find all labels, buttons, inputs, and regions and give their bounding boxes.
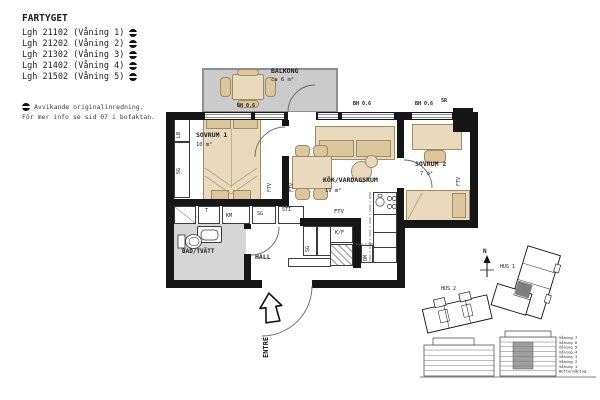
floor-label: Våning 3 <box>559 354 577 359</box>
bed-pillow <box>452 193 466 218</box>
floor-label: Våning 4 <box>559 349 578 354</box>
wall-bottom-left <box>166 280 262 288</box>
hall-bench <box>288 258 331 267</box>
coffee-table-small <box>365 155 378 168</box>
window <box>412 113 452 119</box>
fixture-label-dm: DM <box>364 255 369 261</box>
bedroom2-area: 7 m² <box>420 172 433 178</box>
apartment-row: Lgh 21102 (Våning 1) <box>22 27 137 38</box>
header-block: FARTYGET Lgh 21102 (Våning 1) Lgh 21202 … <box>22 13 137 82</box>
balcony-rail-label: BH 0.6 <box>237 104 255 109</box>
balcony-chair <box>237 69 259 76</box>
fixture-label-km: KM <box>226 214 232 219</box>
balcony-label: BALKONG <box>271 68 298 75</box>
window-bh-label: BH 0.6 <box>415 102 433 107</box>
wardrobe <box>317 226 331 256</box>
balcony-area: ca 6 m² <box>271 78 294 84</box>
fixture-label-kf: K/F <box>335 231 344 236</box>
wall-bedroom2-divider-bottom <box>397 188 404 228</box>
avvikande-marker-icon <box>129 40 137 48</box>
footnote: Avvikande originalinredning. För mer inf… <box>22 102 155 122</box>
shaft-label: SR <box>441 99 447 104</box>
fixture-label-sg: SG <box>177 168 182 174</box>
bathroom-label: BAD/TVÄTT <box>182 249 215 255</box>
site-hus2-building <box>421 288 492 333</box>
fixture-label-ftv: FTV <box>457 177 462 186</box>
footnote-line2: För mer info se sid 07 i bofaktan. <box>22 112 155 122</box>
balcony-door-opening <box>288 112 316 120</box>
door-arc-entry <box>262 286 312 336</box>
wall-kitchen-right <box>397 220 405 288</box>
door-arc-bathroom <box>251 227 279 255</box>
washbasin <box>197 226 222 243</box>
hus2-label: HUS 2 <box>441 286 456 292</box>
apartment-label: Lgh 21102 (Våning 1) <box>22 28 124 38</box>
fixture-label-ftv: FTV <box>268 183 273 192</box>
avvikande-marker-icon <box>129 62 137 70</box>
fixture-label-sti: STI <box>282 208 291 213</box>
fridge-freezer-hatch <box>330 244 353 266</box>
window-bh-label: BH 0.6 <box>353 102 371 107</box>
avvikande-marker-icon <box>129 29 137 37</box>
counter-divider <box>373 247 397 248</box>
kitchen-counter <box>373 192 397 263</box>
fixture-label-lb: LB <box>177 132 182 138</box>
floor-label: Våning 2 <box>559 359 577 364</box>
entry-label: ENTRÉ <box>263 337 270 358</box>
site-hus1-building <box>491 241 563 321</box>
entry-arrow-icon <box>258 292 284 324</box>
bedroom1-area: 10 m² <box>196 143 213 149</box>
dining-table <box>292 156 332 189</box>
floor-plan-page: FARTYGET Lgh 21102 (Våning 1) Lgh 21202 … <box>0 0 600 400</box>
wall-storage-top <box>300 218 361 226</box>
avvikande-marker-icon <box>129 51 137 59</box>
floor-label: Våning 1 <box>559 364 578 369</box>
apartment-row: Lgh 21402 (Våning 4) <box>22 60 137 71</box>
apartment-label: Lgh 21302 (Våning 3) <box>22 50 124 60</box>
dining-chair <box>295 145 310 157</box>
north-label: N <box>483 248 487 255</box>
apartment-label: Lgh 21202 (Våning 2) <box>22 39 124 49</box>
counter-divider <box>373 232 397 233</box>
window <box>205 113 251 119</box>
wall-bath-hall-stub <box>244 224 251 229</box>
floor-label: Våning 5 <box>559 345 577 350</box>
fixture-label-t: T <box>205 209 208 214</box>
avvikande-marker-icon <box>129 73 137 81</box>
dryer-cabinet <box>198 206 220 224</box>
floor-label: Våning 7 <box>559 335 577 340</box>
apartment-row: Lgh 21502 (Våning 5) <box>22 71 137 82</box>
hall-label: HALL <box>255 254 271 261</box>
balcony-chair <box>220 77 231 97</box>
fixture-label-sg: SG <box>257 212 263 217</box>
dining-chair <box>295 188 310 200</box>
wall-bedroom2-bottom <box>397 220 478 228</box>
apartment-label: Lgh 21402 (Våning 4) <box>22 61 124 71</box>
site-highlight-unit <box>514 281 532 299</box>
wall-bedroom1-bottom <box>166 199 289 206</box>
avvikande-marker-icon <box>22 103 30 111</box>
floor-label: Våning 6 <box>559 340 578 345</box>
footnote-line1: Avvikande originalinredning. <box>34 102 144 112</box>
floor-label: Bottenvåning <box>559 369 586 374</box>
balcony-table <box>232 74 264 100</box>
bedroom1-label: SOVRUM 1 <box>196 132 227 139</box>
elevation-drawing <box>420 331 596 377</box>
shaft-sr <box>453 108 473 132</box>
window <box>318 113 338 119</box>
living-area: 19 m² <box>325 189 342 195</box>
dining-chair <box>313 145 328 157</box>
wall-bedroom2-divider-top <box>397 118 404 158</box>
living-label: KÖK/VARDAGSRUM <box>323 177 378 184</box>
window <box>342 113 394 119</box>
hus1-label: HUS 1 <box>500 264 515 270</box>
page-title: FARTYGET <box>22 13 137 24</box>
fixture-label-sg: SG <box>306 246 311 252</box>
elevation-highlight-unit <box>513 342 533 369</box>
fixture-label-ftv: FTV <box>334 210 344 216</box>
bedroom2-label: SOVRUM 2 <box>415 161 446 168</box>
apartment-row: Lgh 21302 (Våning 3) <box>22 49 137 60</box>
apartment-label: Lgh 21502 (Våning 5) <box>22 72 124 82</box>
wall-bath-hall <box>244 254 251 281</box>
fixture-label-ftv: FTV <box>290 183 295 192</box>
north-compass-icon <box>480 255 494 277</box>
wardrobe-sg <box>252 206 276 224</box>
counter-divider <box>373 214 397 215</box>
wall-storage-right <box>353 226 361 268</box>
storage-diagonal <box>174 206 196 224</box>
window <box>255 113 284 119</box>
wall-bottom-right <box>312 280 405 288</box>
apartment-row: Lgh 21202 (Våning 2) <box>22 38 137 49</box>
